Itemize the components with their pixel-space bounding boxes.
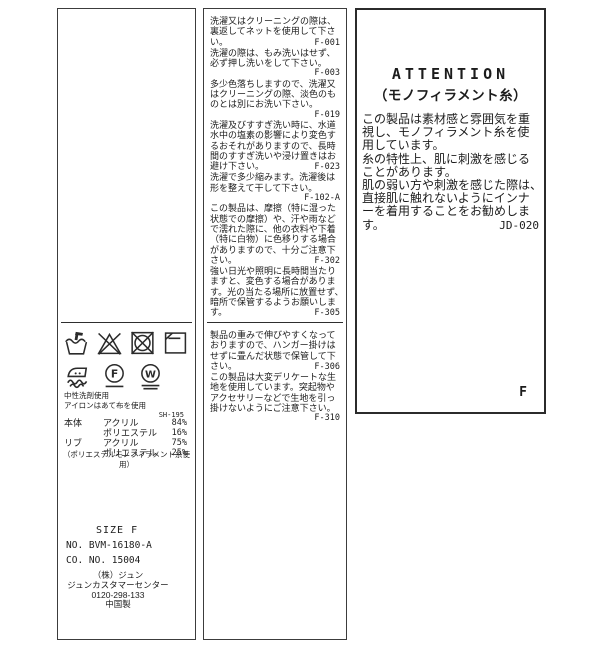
text-line: 間のすすぎ洗いや浸け置きはお bbox=[210, 151, 340, 161]
care-symbols-row-1 bbox=[63, 329, 189, 357]
attention-title: ATTENTION bbox=[357, 65, 544, 83]
attention-body: この製品は素材感と雰囲気を重視し、モノフィラメント糸を使用しています。糸の特性上… bbox=[362, 113, 539, 232]
care-label-sheet: F W 中性洗剤使用アイロンはあて布を使用 SH-195 本体アクリル84%ポリ… bbox=[0, 0, 600, 650]
text-line: 避け下さい。F-023 bbox=[210, 161, 340, 172]
text-line: 多少色落ちしますので、洗濯又 bbox=[210, 79, 340, 89]
text-line: るおそれがありますので、長時 bbox=[210, 141, 340, 151]
iron-with-pressing-cloth-icon bbox=[64, 361, 92, 391]
hand-wash-icon bbox=[63, 329, 90, 357]
text-line: F-310 bbox=[210, 413, 340, 423]
text-line: す。JD-020 bbox=[362, 219, 539, 232]
text-line: さい。F-306 bbox=[210, 361, 340, 372]
text-line: 洗濯で多少縮みます。洗濯後は bbox=[210, 172, 340, 182]
text-line: で濡れた際に、他の衣料や下着 bbox=[210, 224, 340, 234]
text-line: 強い日光や照明に長時間当たり bbox=[210, 266, 340, 276]
text-line: 糸の特性上、肌に刺激を感じる bbox=[362, 153, 539, 166]
do-not-bleach-icon bbox=[96, 329, 123, 357]
text-line: 裏返してネットを使用して下さ bbox=[210, 26, 340, 36]
text-line: のとは別にお洗い下さい。 bbox=[210, 99, 340, 109]
divider bbox=[61, 322, 192, 323]
wet-clean-W-very-gentle-icon: W bbox=[137, 361, 164, 393]
text-line: 中国製 bbox=[58, 600, 178, 610]
text-line: はクリーニングの際、淡色のも bbox=[210, 89, 340, 99]
text-line: 必ず押し洗いをして下さい。 bbox=[210, 58, 340, 68]
text-line: せずに畳んだ状態で保管して下 bbox=[210, 351, 340, 361]
text-line: ますと、変色する場合がありま bbox=[210, 276, 340, 286]
care-symbols-row-2: F W bbox=[64, 361, 164, 393]
attention-subtitle: （モノフィラメント糸） bbox=[357, 84, 544, 104]
text-line: 水中の塩素の影響により変色す bbox=[210, 130, 340, 140]
divider bbox=[207, 322, 343, 323]
text-line: 状態での摩擦）や、汗や雨など bbox=[210, 214, 340, 224]
dry-flat-in-shade-icon bbox=[162, 329, 189, 357]
text-line: 形を整えて干して下さい。 bbox=[210, 183, 340, 193]
text-line: この製品は、摩擦（特に湿った bbox=[210, 203, 340, 213]
co-number: CO. NO. 15004 bbox=[66, 555, 140, 566]
text-line: （特に白物）に色移りする場合 bbox=[210, 234, 340, 244]
text-line: F-102-A bbox=[210, 193, 340, 203]
text-line: F-019 bbox=[210, 110, 340, 120]
size-mark: F bbox=[519, 385, 527, 400]
text-line: 用しています。 bbox=[362, 139, 539, 152]
text-line: す。F-305 bbox=[210, 307, 340, 318]
text-line: ーを着用することをお勧めしま bbox=[362, 205, 539, 218]
text-line: 掛けないようにご注意下さい。 bbox=[210, 403, 340, 413]
text-line: い。F-001 bbox=[210, 37, 340, 48]
usage-notes: 中性洗剤使用アイロンはあて布を使用 bbox=[64, 391, 146, 410]
text-line: がありますので、十分ご注意下 bbox=[210, 245, 340, 255]
text-line: 洗濯の際は、もみ洗いはせず、 bbox=[210, 48, 340, 58]
composition-note: （ポリエステルモノフィラメント糸使用） bbox=[62, 450, 191, 469]
text-line: おりますので、ハンガー掛けは bbox=[210, 340, 340, 350]
text-line: 洗濯又はクリーニングの際は、 bbox=[210, 16, 340, 26]
text-line: さい。F-302 bbox=[210, 255, 340, 266]
washing-instructions-panel: 洗濯又はクリーニングの際は、裏返してネットを使用して下さい。F-001洗濯の際は… bbox=[203, 8, 347, 640]
text-line: す。光の当たる場所に放置せず、 bbox=[210, 287, 340, 297]
text-line: 暗所で保管するようお願いしま bbox=[210, 297, 340, 307]
text-line: この製品は大変デリケートな生 bbox=[210, 372, 340, 382]
washing-instructions-block-1: 洗濯又はクリーニングの際は、裏返してネットを使用して下さい。F-001洗濯の際は… bbox=[210, 16, 340, 319]
dry-clean-F-gentle-icon: F bbox=[101, 361, 128, 393]
do-not-tumble-dry-icon bbox=[129, 329, 156, 357]
text-line: アイロンはあて布を使用 bbox=[64, 401, 146, 411]
care-symbol-label-panel: F W 中性洗剤使用アイロンはあて布を使用 SH-195 本体アクリル84%ポリ… bbox=[57, 8, 196, 640]
washing-instructions-block-2: 製品の重みで伸びやすくなっておりますので、ハンガー掛けはせずに畳んだ状態で保管し… bbox=[210, 330, 340, 424]
text-line: アクセサリーなどで生地を引っ bbox=[210, 393, 340, 403]
text-line: 製品の重みで伸びやすくなって bbox=[210, 330, 340, 340]
size-label: SIZE F bbox=[96, 525, 138, 536]
product-number: NO. BVM-16180-A bbox=[66, 540, 152, 551]
text-line: 地を使用しています。突起物や bbox=[210, 382, 340, 392]
maker-contact-block: （株）ジュンジュンカスタマーセンター0120-298-133中国製 bbox=[58, 571, 178, 610]
svg-text:W: W bbox=[145, 369, 156, 380]
svg-text:F: F bbox=[111, 367, 118, 380]
text-line: 洗濯及びすすぎ洗い時に、水道 bbox=[210, 120, 340, 130]
text-line: 中性洗剤使用 bbox=[64, 391, 146, 401]
attention-notice-panel: ATTENTION （モノフィラメント糸） この製品は素材感と雰囲気を重視し、モ… bbox=[355, 8, 546, 414]
text-line: F-003 bbox=[210, 68, 340, 78]
